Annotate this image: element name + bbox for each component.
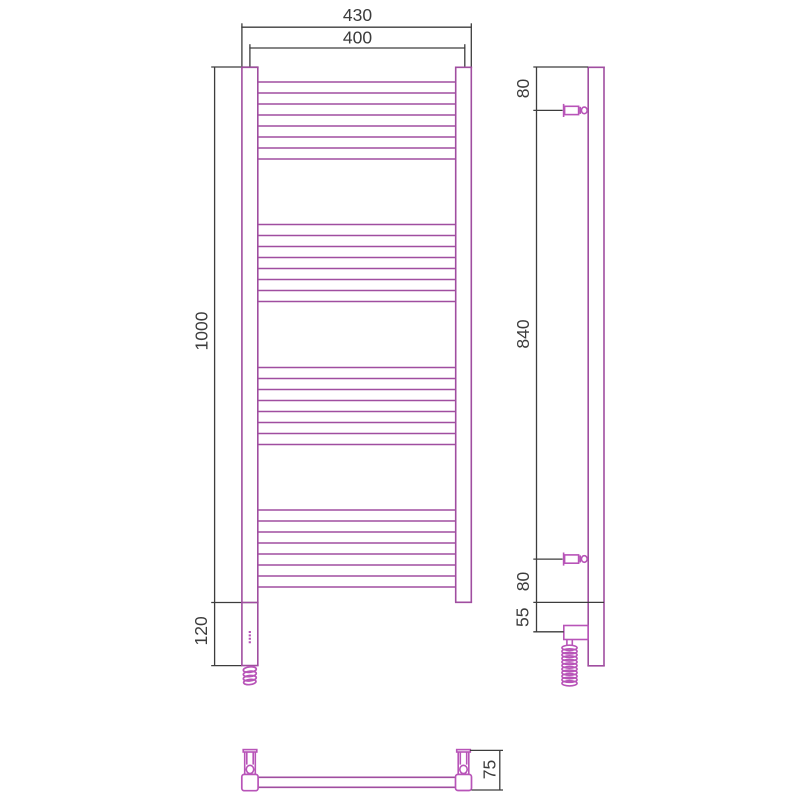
svg-text:80: 80 (513, 79, 533, 99)
svg-text:1000: 1000 (192, 311, 212, 350)
svg-text:55: 55 (513, 608, 533, 627)
svg-text:400: 400 (343, 28, 372, 48)
svg-text:430: 430 (343, 5, 372, 25)
svg-text:840: 840 (513, 319, 533, 348)
svg-text:75: 75 (479, 760, 499, 779)
svg-text:120: 120 (191, 616, 211, 645)
svg-text:80: 80 (513, 572, 533, 592)
